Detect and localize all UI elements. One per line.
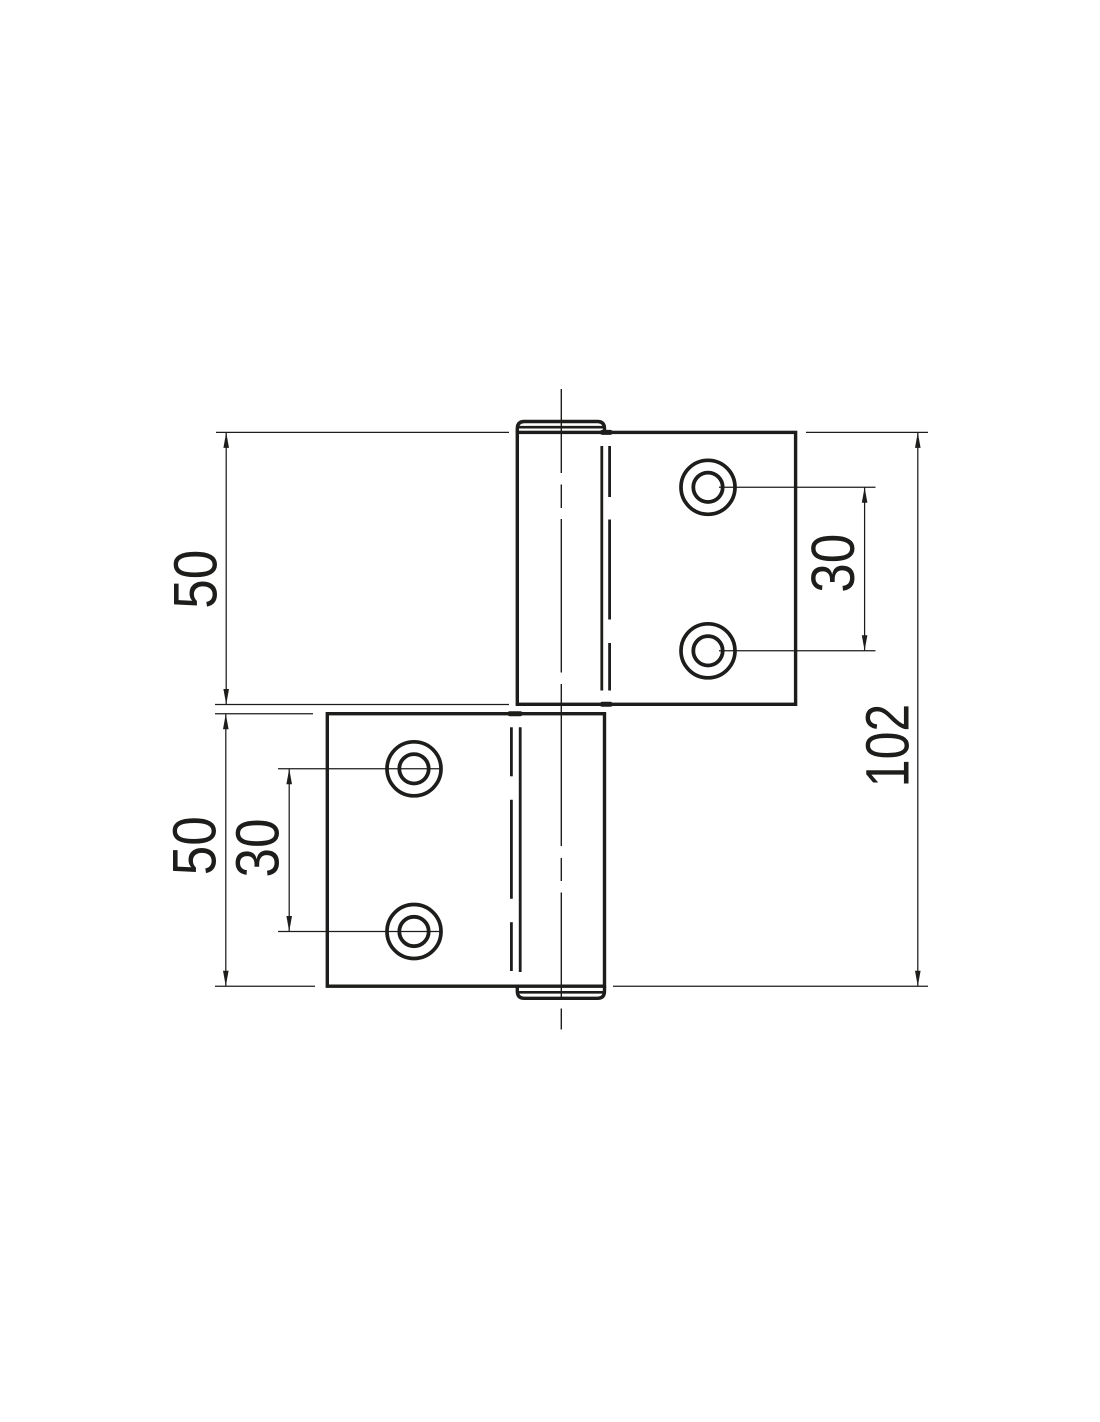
svg-text:30: 30 <box>224 818 292 877</box>
svg-text:50: 50 <box>162 550 230 609</box>
svg-text:102: 102 <box>854 704 922 787</box>
svg-text:50: 50 <box>161 816 229 875</box>
svg-text:30: 30 <box>800 534 868 593</box>
